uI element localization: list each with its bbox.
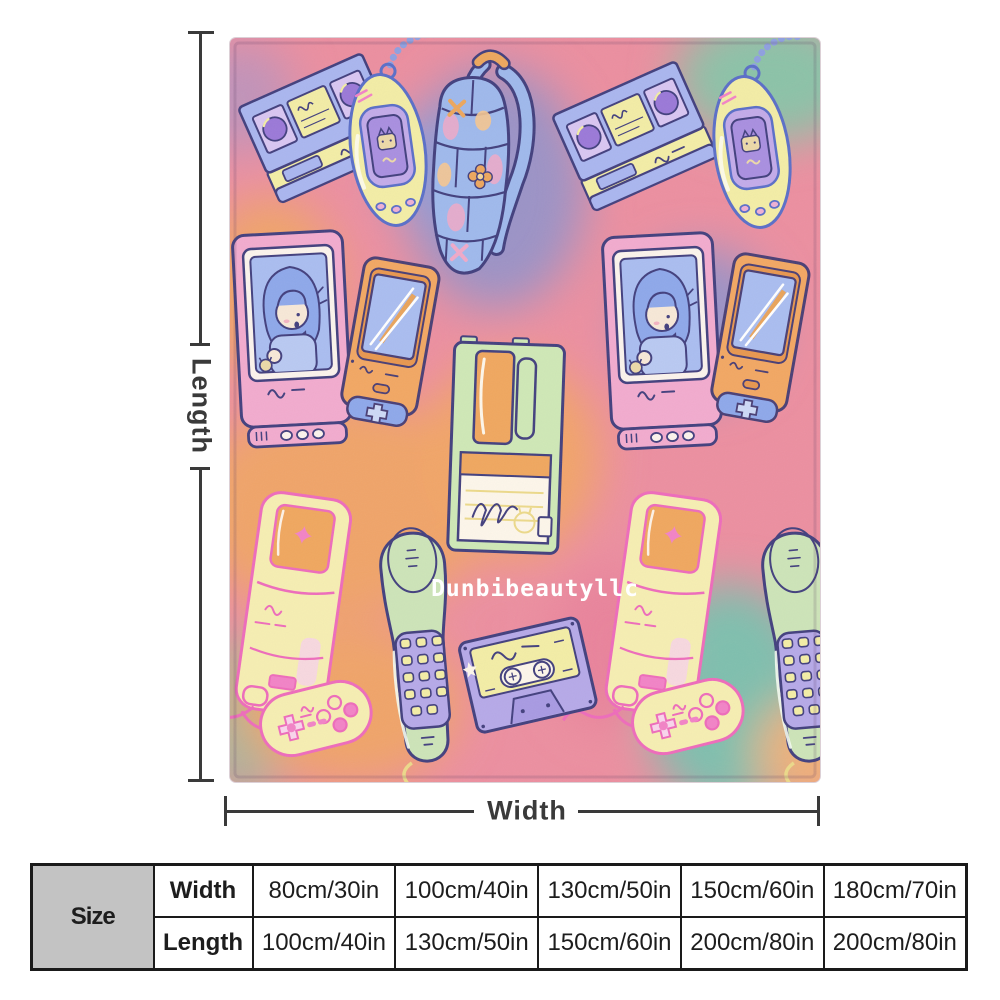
length-value-5: 200cm/80in (824, 917, 967, 970)
blanket-artwork (230, 38, 820, 782)
product-size-chart-image: Length Width (0, 0, 1000, 1000)
length-label: Length (186, 358, 217, 454)
length-line-segment-top (199, 33, 202, 343)
width-value-3: 130cm/50in (538, 865, 681, 918)
width-label: Width (487, 796, 567, 827)
width-line-cap-right (817, 796, 820, 826)
width-value-5: 180cm/70in (824, 865, 967, 918)
length-value-2: 130cm/50in (395, 917, 538, 970)
width-value-4: 150cm/60in (681, 865, 824, 918)
blanket-preview: Dunbibeautyllc (230, 38, 820, 782)
length-value-3: 150cm/60in (538, 917, 681, 970)
width-line-segment-left (227, 810, 474, 813)
brand-watermark: Dunbibeautyllc (431, 576, 639, 602)
length-line-segment-bottom (199, 470, 202, 779)
width-line-segment-right (578, 810, 817, 813)
width-value-1: 80cm/30in (253, 865, 396, 918)
size-corner-cell: Size (32, 865, 154, 970)
fabric-texture (230, 38, 820, 782)
length-line-gap-cap-upper (190, 343, 210, 346)
size-table: Size Width 80cm/30in 100cm/40in 130cm/50… (30, 863, 968, 971)
width-value-2: 100cm/40in (395, 865, 538, 918)
length-row-label: Length (154, 917, 253, 970)
width-row-label: Width (154, 865, 253, 918)
length-value-1: 100cm/40in (253, 917, 396, 970)
length-value-4: 200cm/80in (681, 917, 824, 970)
length-line-cap-bottom (188, 779, 214, 782)
